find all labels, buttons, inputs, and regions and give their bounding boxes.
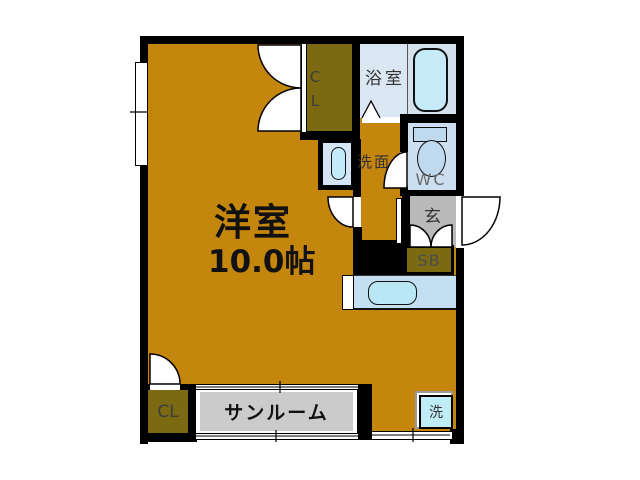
- wall: [404, 190, 456, 196]
- window-bottom-right: [372, 431, 452, 440]
- wall: [402, 196, 410, 247]
- washer-box: 洗: [415, 391, 453, 429]
- shoe-box-label: SB: [407, 248, 451, 272]
- wall: [353, 240, 407, 275]
- wall: [400, 114, 408, 152]
- wall: [140, 36, 464, 44]
- sunroom-floor: サンルーム: [200, 392, 353, 431]
- sunroom-sliding-window-bottom: [196, 433, 358, 440]
- wall: [353, 227, 362, 240]
- wall: [358, 384, 372, 440]
- wall: [400, 114, 460, 123]
- entrance-label: 玄: [424, 202, 441, 227]
- bath-label: 浴室: [365, 64, 405, 89]
- bath-door-opening: [362, 117, 400, 123]
- sunroom-label: サンルーム: [224, 398, 328, 425]
- sunroom: サンルーム: [195, 389, 358, 434]
- main-room-size: 10.0帖: [208, 236, 316, 281]
- front-door-opening: [456, 196, 464, 248]
- entrance-step: [396, 198, 402, 244]
- kitchen-sink-fixture: [368, 281, 417, 305]
- closet-bottom-label: CL: [148, 390, 188, 433]
- wall: [352, 36, 360, 140]
- wall: [450, 429, 464, 444]
- closet-top-label: CL: [306, 60, 352, 124]
- washer-floor: 洗: [419, 395, 453, 429]
- vanity-sink-fixture: [331, 147, 346, 180]
- kitchen-counter-end: [342, 275, 354, 310]
- bathtub-fixture: [413, 48, 448, 112]
- front-door-arc: [462, 197, 500, 245]
- vanity-label: 洗面: [357, 151, 391, 172]
- floor-plan: SB サンルーム 洗: [0, 0, 640, 480]
- shoe-box: SB: [404, 245, 454, 275]
- wc-label: WC: [406, 170, 456, 189]
- washer-label: 洗: [429, 402, 443, 422]
- hall-door-opening: [353, 197, 361, 227]
- window-left: [135, 62, 148, 166]
